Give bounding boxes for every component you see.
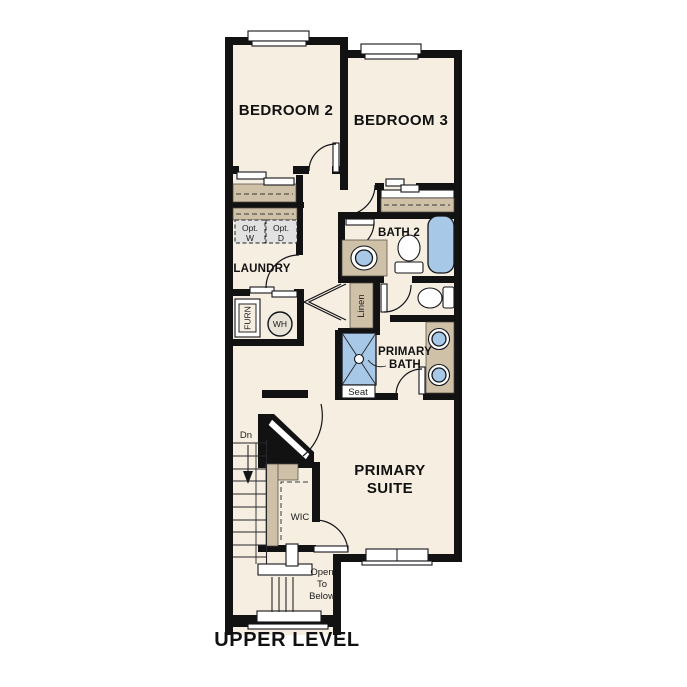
bedroom2-closet-shelf <box>233 184 296 202</box>
primary-bath-label-line1: PRIMARY <box>378 346 432 358</box>
stair-railing <box>258 564 312 575</box>
bedroom2-label: BEDROOM 2 <box>239 102 333 119</box>
stair-railing-post <box>286 544 298 566</box>
stairwell-window <box>248 611 328 629</box>
bath2-sink-icon <box>351 246 377 270</box>
linen-label: Linen <box>356 294 367 317</box>
bathtub-icon <box>428 216 454 273</box>
primary-suite-label-line1: PRIMARY <box>354 462 425 479</box>
open-to-below-line3: Below <box>309 591 335 602</box>
stairs-down-label: Dn <box>240 430 252 441</box>
bedroom3-window <box>361 44 421 59</box>
shower-seat-label: Seat <box>348 387 368 398</box>
floor-plan-page: BEDROOM 2 BEDROOM 3 BATH 2 LAUNDRY PRIMA… <box>0 0 687 687</box>
floor-plan-svg: BEDROOM 2 BEDROOM 3 BATH 2 LAUNDRY PRIMA… <box>0 0 687 687</box>
furnace-label: FURN <box>243 306 253 330</box>
primary-suite-window <box>362 549 432 565</box>
water-heater-label: WH <box>273 319 287 329</box>
wic-label: WIC <box>291 512 310 523</box>
primary-sink2-icon <box>429 365 450 386</box>
wic-shelf-left <box>266 464 278 546</box>
bedroom3-label: BEDROOM 3 <box>354 112 448 129</box>
open-to-below-line2: To <box>317 579 327 590</box>
opt-washer-label-line1: Opt. <box>242 223 258 233</box>
opt-dryer-label-line2: D <box>278 233 284 243</box>
primary-toilet-icon <box>418 287 454 308</box>
laundry-label: LAUNDRY <box>233 263 290 275</box>
open-to-below-line1: Open <box>310 567 333 578</box>
bath2-label: BATH 2 <box>378 227 420 239</box>
bedroom2-window <box>248 31 309 46</box>
opt-dryer-label-line1: Opt. <box>273 223 289 233</box>
primary-suite-label-line2: SUITE <box>367 480 413 497</box>
primary-bath-label-line2: BATH <box>389 359 421 371</box>
opt-washer-label-line2: W <box>246 233 254 243</box>
plan-title: UPPER LEVEL <box>214 629 360 651</box>
